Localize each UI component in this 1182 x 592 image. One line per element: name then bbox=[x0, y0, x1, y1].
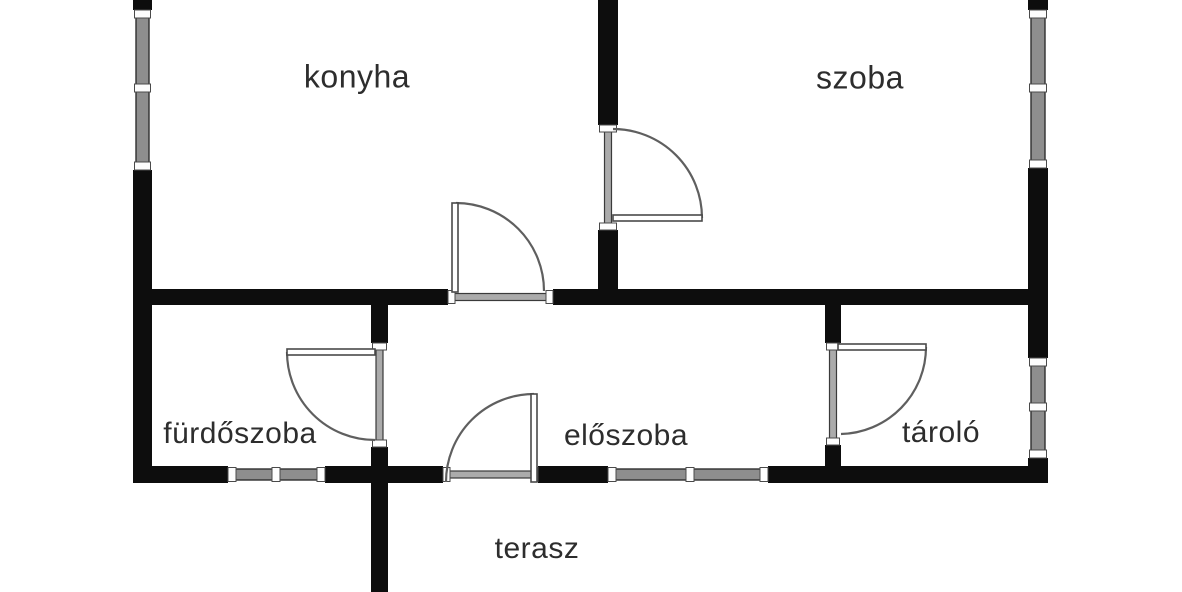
room-label-konyha: konyha bbox=[304, 59, 410, 96]
floorplan-drawing bbox=[0, 0, 1182, 592]
floorplan: konyha szoba fürdőszoba előszoba tároló … bbox=[0, 0, 1182, 592]
room-label-terasz: terasz bbox=[495, 532, 580, 566]
room-label-szoba: szoba bbox=[816, 60, 904, 97]
room-label-tarolo: tároló bbox=[902, 416, 980, 450]
room-label-eloszoba: előszoba bbox=[564, 419, 688, 453]
room-label-furdoszoba: fürdőszoba bbox=[163, 417, 316, 451]
